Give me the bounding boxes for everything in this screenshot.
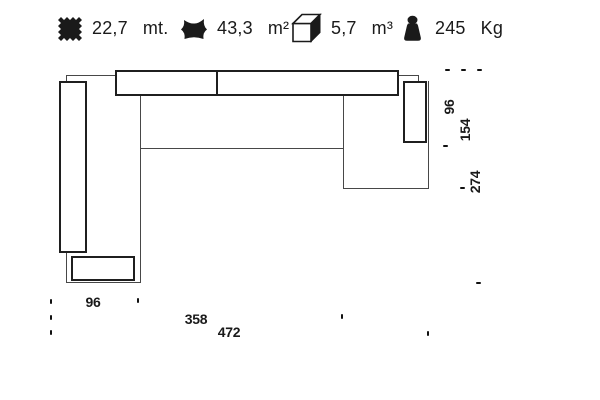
backrest-cushion-left (115, 70, 218, 96)
backrest-cushion-right (216, 70, 399, 96)
dim-right-274-tick-top (477, 69, 482, 71)
fabric-unit: mt. (143, 18, 169, 39)
volume-value: 5,7 (331, 18, 357, 39)
left-armrest (59, 81, 87, 253)
spec-volume: 5,7m³ (290, 0, 393, 57)
dim-bottom-96-tick-left (50, 299, 52, 304)
area-value: 43,3 (217, 18, 253, 39)
left-chaise-inner-edge (140, 95, 141, 283)
dim-right-274-tick-bottom (476, 282, 481, 284)
spec-area: 43,3m² (180, 0, 289, 57)
dim-label-bottom-96: 96 (86, 294, 101, 310)
chaise-end-cushion (71, 256, 135, 281)
spec-weight: 245Kg (399, 0, 503, 57)
dim-right-96-tick-bottom (443, 145, 448, 147)
fabric-value: 22,7 (92, 18, 128, 39)
seat-front-edge (140, 148, 344, 149)
leather-area-icon (180, 17, 208, 41)
dim-bottom-472-tick-right (427, 331, 429, 336)
right-chaise-inner-edge (343, 95, 344, 189)
dim-label-right-274: 274 (467, 171, 483, 193)
volume-cube-icon (290, 13, 322, 44)
dim-label-right-96: 96 (441, 100, 457, 115)
spec-fabric: 22,7mt. (57, 0, 168, 57)
dim-bottom-358-tick-left (50, 315, 52, 320)
dim-bottom-96-tick-right (137, 298, 139, 303)
weight-value: 245 (435, 18, 466, 39)
right-chaise-bottom-edge (343, 188, 429, 189)
dim-right-154-tick-bottom (460, 187, 465, 189)
weight-icon (399, 15, 426, 42)
volume-unit: m³ (372, 18, 393, 39)
dim-right-154-tick-top (461, 69, 466, 71)
weight-unit: Kg (481, 18, 503, 39)
dim-label-bottom-472: 472 (218, 324, 240, 340)
dim-right-96-tick-top (445, 69, 450, 71)
dim-label-right-154: 154 (457, 119, 473, 141)
area-unit: m² (268, 18, 289, 39)
dim-bottom-358-tick-right (341, 314, 343, 319)
fabric-meters-icon (57, 16, 83, 42)
catalog-sofa-spec-sheet: 22,7mt. 43,3m² 5,7m³ 245Kg (0, 0, 600, 400)
platform-bottom-left-edge (66, 282, 141, 283)
dim-label-bottom-358: 358 (185, 311, 207, 327)
dim-bottom-472-tick-left (50, 330, 52, 335)
right-armrest (403, 81, 427, 143)
platform-right-edge (428, 81, 429, 189)
